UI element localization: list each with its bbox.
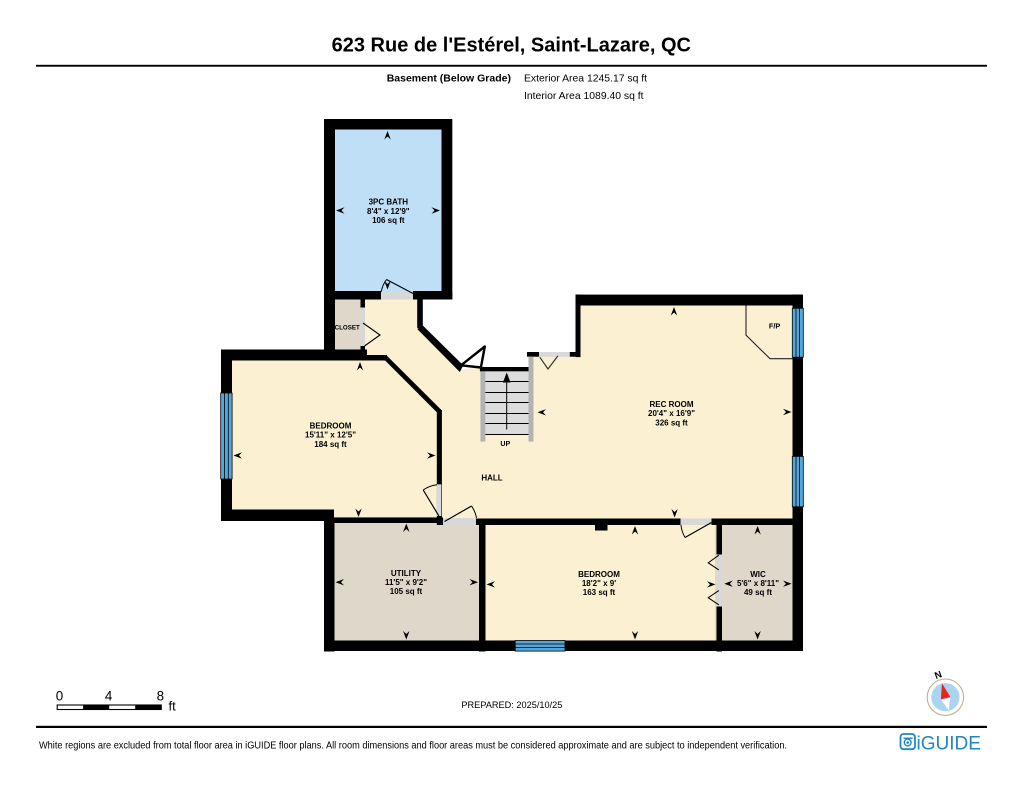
svg-text:106 sq ft: 106 sq ft [372,216,405,225]
svg-text:Basement (Below Grade): Basement (Below Grade) [387,73,511,85]
svg-text:ft: ft [169,699,177,714]
svg-text:WIC: WIC [750,570,766,579]
svg-text:UP: UP [500,441,510,448]
svg-text:163 sq ft: 163 sq ft [583,588,616,597]
svg-text:3PC BATH: 3PC BATH [369,198,409,207]
svg-text:REC ROOM: REC ROOM [650,400,694,409]
svg-text:F/P: F/P [769,322,780,331]
svg-text:5'6" x 8'11": 5'6" x 8'11" [737,579,779,588]
svg-text:BEDROOM: BEDROOM [310,421,352,430]
svg-text:iGUIDE: iGUIDE [917,733,982,754]
svg-text:184 sq ft: 184 sq ft [314,440,347,449]
svg-text:PREPARED: 2025/10/25: PREPARED: 2025/10/25 [461,700,562,710]
svg-text:11'5" x 9'2": 11'5" x 9'2" [385,578,427,587]
svg-text:4: 4 [105,689,113,704]
svg-text:0: 0 [56,689,63,704]
svg-text:326 sq ft: 326 sq ft [655,418,688,427]
svg-text:8: 8 [157,689,164,704]
svg-text:BEDROOM: BEDROOM [578,570,620,579]
svg-text:Interior Area 1089.40 sq ft: Interior Area 1089.40 sq ft [524,91,644,102]
svg-text:White regions are excluded fro: White regions are excluded from total fl… [39,741,787,752]
svg-text:UTILITY: UTILITY [391,569,422,578]
svg-text:623 Rue de l'Estérel, Saint-La: 623 Rue de l'Estérel, Saint-Lazare, QC [332,35,691,57]
svg-text:105 sq ft: 105 sq ft [390,587,423,596]
svg-text:8'4" x 12'9": 8'4" x 12'9" [367,207,410,216]
svg-text:15'11" x 12'5": 15'11" x 12'5" [305,431,356,440]
svg-text:Exterior Area 1245.17 sq ft: Exterior Area 1245.17 sq ft [524,74,647,85]
svg-text:CLOSET: CLOSET [335,325,360,332]
svg-text:N: N [933,669,943,682]
svg-text:20'4" x 16'9": 20'4" x 16'9" [648,409,695,418]
svg-text:18'2" x 9': 18'2" x 9' [582,579,616,588]
svg-text:HALL: HALL [481,474,502,483]
svg-text:49 sq ft: 49 sq ft [744,588,772,597]
